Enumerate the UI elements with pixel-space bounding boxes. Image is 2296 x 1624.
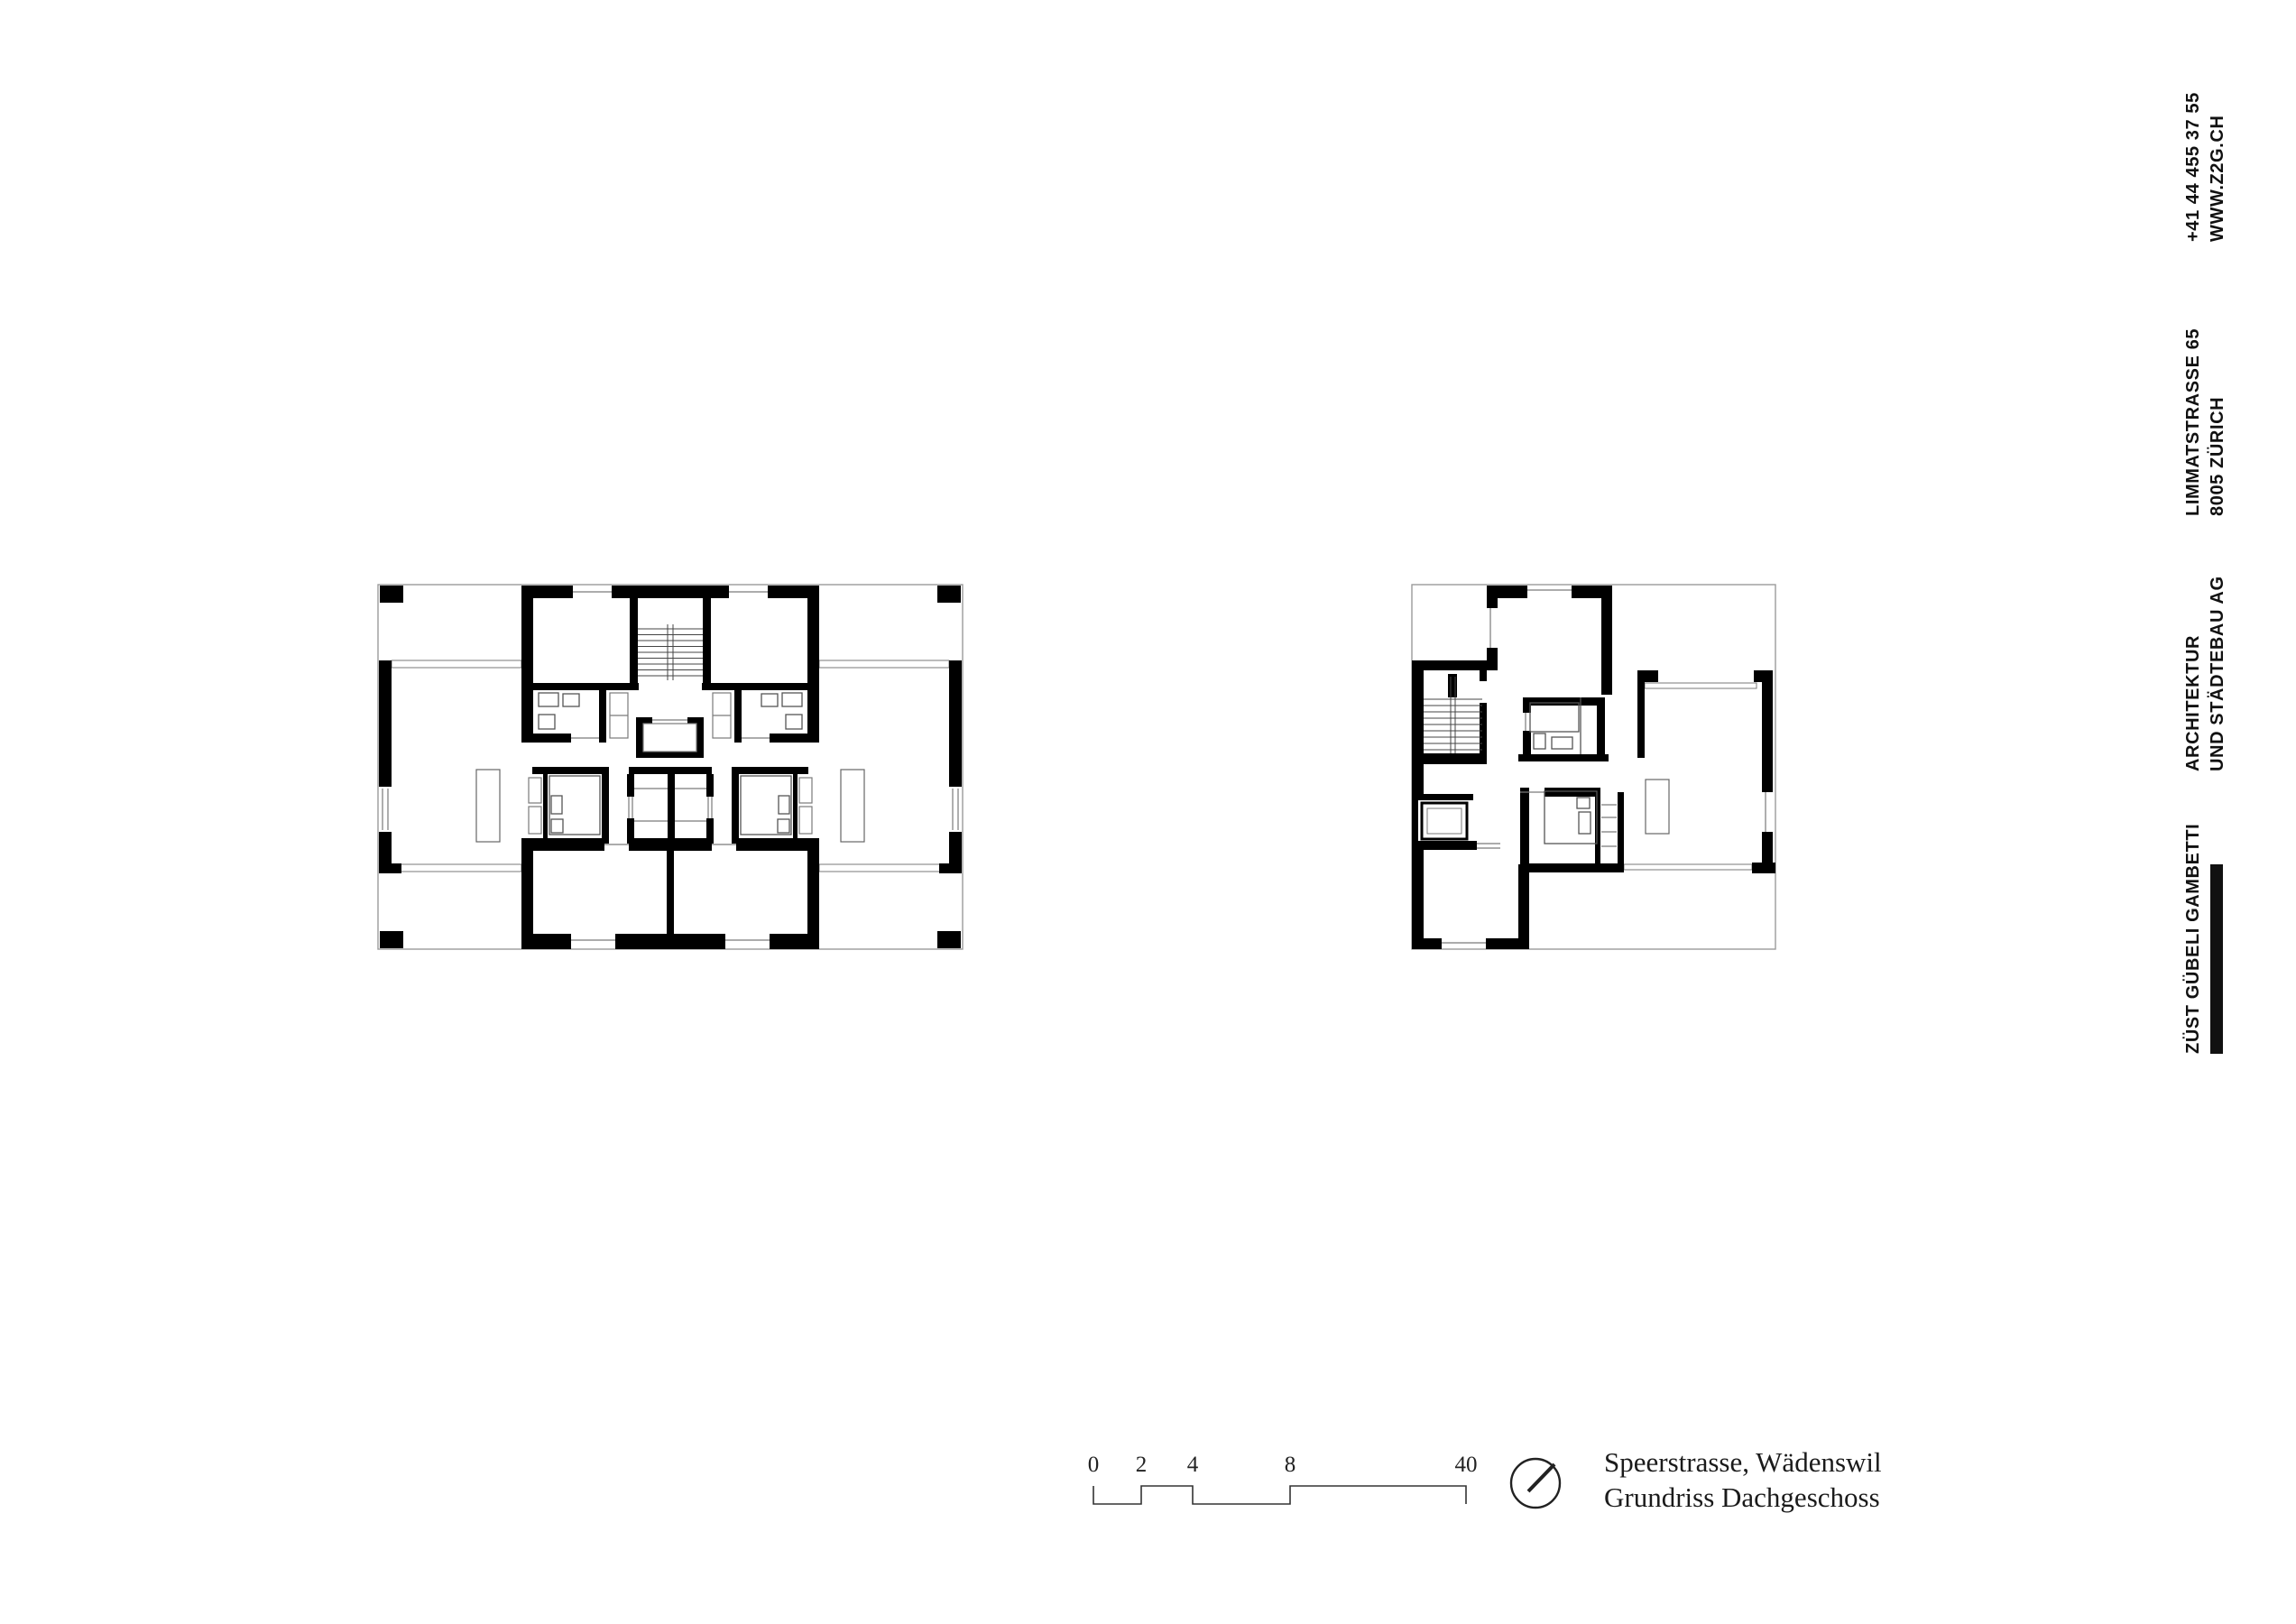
scale-label-2: 2 (1136, 1453, 1148, 1478)
brand-name: ZÜST GÜBELI GAMBETTI (2181, 824, 2206, 1054)
terrace-outline (1412, 585, 1775, 949)
floorplan-left (378, 585, 963, 949)
walls (379, 586, 962, 949)
phone-number: +41 44 455 37 55 (2181, 92, 2206, 242)
scale-label-40: 40 (1455, 1453, 1478, 1478)
plan-sheet: 0 2 4 8 40 Speerstrasse, Wädenswil Grund… (0, 0, 2296, 1624)
kitchen-island (1646, 780, 1669, 834)
title-block: Speerstrasse, Wädenswil Grundriss Dachge… (1604, 1444, 1882, 1515)
brand-bar (2210, 864, 2223, 1054)
walls (1412, 586, 1775, 949)
firm-line1: ARCHITEKTUR (2181, 576, 2206, 771)
scale-label-0: 0 (1088, 1453, 1100, 1478)
fixtures (1530, 697, 1597, 844)
firm-block: ARCHITEKTUR UND STÄDTEBAU AG (2181, 576, 2230, 771)
scale-bar (1093, 1486, 1466, 1504)
drawing-title: Grundriss Dachgeschoss (1604, 1480, 1882, 1515)
firm-line2: UND STÄDTEBAU AG (2206, 576, 2230, 771)
brand-block: ZÜST GÜBELI GAMBETTI (2181, 824, 2206, 1054)
project-title: Speerstrasse, Wädenswil (1604, 1444, 1882, 1480)
website-url: WWW.Z2G.CH (2206, 92, 2230, 242)
city-address: 8005 ZÜRICH (2206, 328, 2230, 516)
staircase (638, 624, 703, 680)
street-address: LIMMATSTRASSE 65 (2181, 328, 2206, 516)
address-block: LIMMATSTRASSE 65 8005 ZÜRICH (2181, 328, 2230, 516)
floorplan-right (1412, 585, 1775, 949)
scale-label-4: 4 (1187, 1453, 1199, 1478)
contact-block: +41 44 455 37 55 WWW.Z2G.CH (2181, 92, 2230, 242)
drawing-canvas (0, 0, 2296, 1624)
scale-label-8: 8 (1285, 1453, 1296, 1478)
elevator (1422, 803, 1467, 839)
north-arrow-icon (1511, 1459, 1560, 1508)
